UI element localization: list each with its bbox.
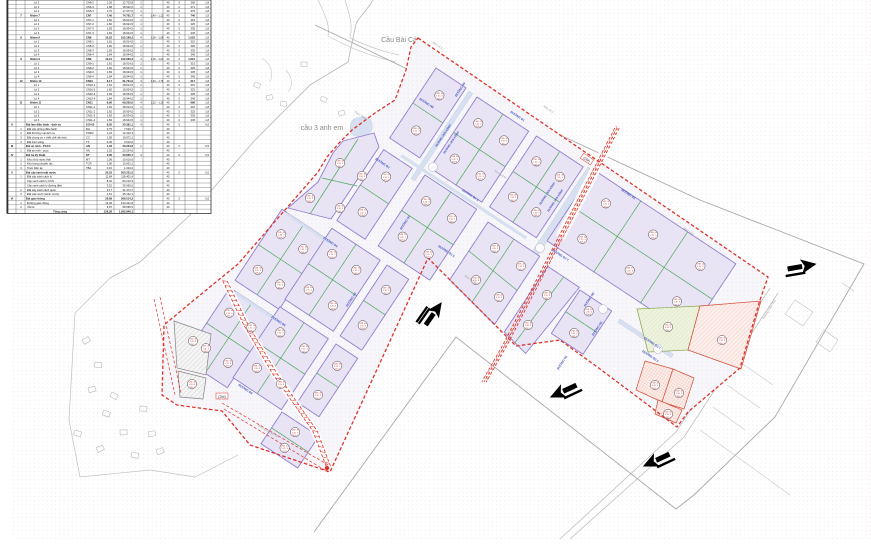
svg-text:325: 325	[191, 109, 196, 113]
svg-text:200-1: 200-1	[335, 369, 341, 371]
svg-text:CN11-1: CN11-1	[86, 105, 96, 109]
svg-text:6,90: 6,90	[107, 101, 113, 105]
svg-text:200-1: 200-1	[676, 396, 682, 398]
svg-text:1,35 3: 1,35 3	[277, 333, 284, 335]
svg-text:40: 40	[167, 136, 170, 140]
svg-text:Vỉa hè: Vỉa hè	[27, 205, 35, 209]
svg-text:18.622,0: 18.622,0	[123, 5, 134, 9]
svg-text:CN10-1: CN10-1	[86, 83, 96, 87]
svg-text:325: 325	[191, 44, 196, 48]
svg-text:18.934,5: 18.934,5	[123, 48, 134, 52]
svg-text:1,8: 1,8	[205, 53, 209, 57]
svg-text:1,35 3: 1,35 3	[334, 366, 341, 368]
svg-text:CN8 40: CN8 40	[202, 346, 210, 348]
svg-text:Đất cây xanh cách ly: Đất cây xanh cách ly	[27, 175, 52, 179]
svg-text:740: 740	[191, 14, 196, 18]
svg-text:1,35 3: 1,35 3	[359, 176, 366, 178]
svg-text:1,35 3: 1,35 3	[627, 270, 634, 272]
svg-text:1,35 3: 1,35 3	[697, 266, 704, 268]
svg-text:1,82: 1,82	[107, 22, 113, 26]
svg-text:1,35 3: 1,35 3	[307, 198, 314, 200]
svg-text:cầu 3 anh em: cầu 3 anh em	[301, 123, 344, 132]
svg-text:1,35 3: 1,35 3	[665, 327, 672, 329]
svg-text:200-1: 200-1	[279, 237, 285, 239]
svg-text:205.231,2: 205.231,2	[121, 170, 133, 174]
svg-text:40: 40	[167, 144, 170, 148]
svg-text:1,36 – 1,04: 1,36 – 1,04	[151, 58, 164, 61]
svg-text:40: 40	[167, 149, 170, 153]
svg-text:Nhóm 10: Nhóm 10	[30, 79, 42, 83]
svg-text:126,28: 126,28	[104, 210, 113, 214]
svg-text:Đất chung cư + thiết chế văn h: Đất chung cư + thiết chế văn hóa	[27, 136, 67, 140]
svg-text:40: 40	[167, 83, 170, 87]
svg-text:CN8 40: CN8 40	[509, 194, 517, 196]
svg-text:1,35 3: 1,35 3	[278, 384, 285, 386]
svg-text:200-1: 200-1	[384, 180, 390, 182]
svg-text:6,87: 6,87	[107, 205, 113, 209]
svg-text:CN11-3: CN11-3	[86, 114, 96, 118]
svg-text:1,35 3: 1,35 3	[544, 295, 551, 297]
svg-text:200-1: 200-1	[189, 387, 195, 389]
svg-text:CN8 40: CN8 40	[382, 174, 390, 176]
svg-text:18.924,5: 18.924,5	[123, 44, 134, 48]
svg-text:1,83: 1,83	[107, 27, 113, 31]
svg-text:1,81: 1,81	[107, 83, 113, 87]
svg-text:200-1: 200-1	[203, 351, 209, 353]
svg-text:AN: AN	[86, 149, 90, 153]
svg-text:CN8 40: CN8 40	[399, 234, 407, 236]
svg-text:6,5: 6,5	[205, 153, 209, 157]
svg-text:200-1: 200-1	[277, 287, 283, 289]
svg-text:40: 40	[167, 61, 170, 65]
svg-text:CN8 40: CN8 40	[253, 365, 261, 367]
svg-text:200-1: 200-1	[580, 242, 586, 244]
svg-text:1,8: 1,8	[205, 92, 209, 96]
svg-text:1,35 3: 1,35 3	[292, 432, 299, 434]
svg-text:1,36 – 1,09: 1,36 – 1,09	[151, 36, 164, 39]
svg-text:1,84: 1,84	[107, 118, 113, 122]
svg-text:CN8 40: CN8 40	[225, 310, 233, 312]
svg-text:40: 40	[167, 88, 170, 92]
svg-text:200-1: 200-1	[278, 335, 284, 337]
svg-text:40: 40	[167, 27, 170, 31]
svg-text:CN9-2: CN9-2	[86, 66, 94, 70]
svg-text:1,35 3: 1,35 3	[571, 333, 578, 335]
svg-text:Lô 2: Lô 2	[34, 0, 40, 4]
svg-text:1,8: 1,8	[205, 48, 209, 52]
svg-text:40: 40	[167, 179, 170, 183]
svg-text:20.234,6: 20.234,6	[123, 149, 134, 153]
svg-text:371: 371	[191, 5, 196, 9]
svg-text:200-1: 200-1	[315, 398, 321, 400]
svg-text:VI: VI	[11, 197, 14, 201]
svg-text:1,35 3: 1,35 3	[337, 163, 344, 165]
svg-text:40: 40	[167, 197, 170, 201]
svg-text:345: 345	[191, 53, 196, 57]
svg-text:40: 40	[167, 192, 170, 196]
svg-text:1,8: 1,8	[205, 88, 209, 92]
svg-text:1,8: 1,8	[205, 70, 209, 74]
svg-text:DH: DH	[86, 127, 90, 131]
svg-text:1,83: 1,83	[107, 92, 113, 96]
svg-text:20.391,1: 20.391,1	[123, 122, 134, 126]
svg-text:134.421,8: 134.421,8	[121, 201, 133, 205]
svg-text:20,69: 20,69	[105, 197, 112, 201]
svg-text:1,88: 1,88	[107, 5, 113, 9]
svg-text:31.474,7: 31.474,7	[123, 188, 134, 192]
svg-text:1,8: 1,8	[205, 75, 209, 79]
svg-text:1,35 3: 1,35 3	[518, 266, 525, 268]
svg-text:1,35 3: 1,35 3	[674, 302, 681, 304]
svg-text:18.924,5: 18.924,5	[123, 22, 134, 26]
svg-text:1,8: 1,8	[205, 101, 209, 105]
svg-text:CN8 40: CN8 40	[436, 93, 444, 95]
svg-text:375: 375	[191, 9, 196, 13]
svg-text:200-1: 200-1	[384, 293, 390, 295]
svg-text:40: 40	[167, 170, 170, 174]
svg-text:CN6-3: CN6-3	[86, 5, 94, 9]
svg-text:40: 40	[167, 5, 170, 9]
svg-text:200-1: 200-1	[330, 308, 336, 310]
svg-text:CN8 40: CN8 40	[301, 346, 309, 348]
svg-text:206.514,2: 206.514,2	[121, 197, 133, 201]
svg-text:18.944,5: 18.944,5	[123, 53, 134, 57]
svg-text:Lô 1: Lô 1	[34, 83, 40, 87]
svg-text:20.234,6: 20.234,6	[123, 144, 134, 148]
svg-text:6,5: 6,5	[205, 170, 209, 174]
svg-text:0,45: 0,45	[107, 140, 113, 144]
svg-text:CN8 40: CN8 40	[299, 247, 307, 249]
svg-text:CN8 40: CN8 40	[570, 331, 578, 333]
svg-text:1,8: 1,8	[205, 5, 209, 9]
svg-text:(2M): (2M)	[218, 395, 225, 399]
svg-text:1,24: 1,24	[107, 131, 113, 135]
svg-text:315: 315	[191, 40, 196, 44]
svg-text:1,35 3: 1,35 3	[301, 349, 308, 351]
svg-text:1,26: 1,26	[107, 0, 113, 4]
svg-text:40: 40	[167, 44, 170, 48]
svg-text:200-1: 200-1	[627, 273, 633, 275]
svg-text:CN8 40: CN8 40	[675, 391, 683, 393]
svg-text:KT: KT	[86, 153, 90, 157]
svg-text:1.021: 1.021	[188, 57, 195, 61]
svg-text:1,35 3: 1,35 3	[226, 313, 233, 315]
svg-text:6,17: 6,17	[107, 79, 113, 83]
svg-text:1,8: 1,8	[205, 118, 209, 122]
svg-text:18.914,5: 18.914,5	[123, 83, 134, 87]
svg-text:CN8 40: CN8 40	[651, 383, 659, 385]
svg-text:13,39: 13,39	[105, 201, 112, 205]
svg-text:CN8 40: CN8 40	[352, 268, 360, 270]
svg-text:200-1: 200-1	[510, 200, 516, 202]
svg-text:40: 40	[167, 48, 170, 52]
svg-text:40: 40	[167, 140, 170, 144]
svg-text:CN8-1: CN8-1	[86, 40, 94, 44]
svg-text:1,81: 1,81	[107, 40, 113, 44]
svg-text:CN11: CN11	[86, 101, 93, 105]
svg-text:3,06: 3,06	[107, 153, 113, 157]
svg-text:Đất an ninh - pccc: Đất an ninh - pccc	[27, 149, 49, 153]
svg-text:102.066,3: 102.066,3	[121, 57, 133, 61]
svg-text:1,8: 1,8	[205, 14, 209, 18]
svg-text:Lô 1: Lô 1	[34, 18, 40, 22]
svg-text:1,35 3: 1,35 3	[719, 340, 726, 342]
svg-text:CN8 40: CN8 40	[602, 201, 610, 203]
svg-text:345: 345	[191, 75, 196, 79]
svg-text:CN8 40: CN8 40	[533, 159, 541, 161]
svg-text:12.703,8: 12.703,8	[123, 0, 134, 4]
svg-text:17.377,0: 17.377,0	[123, 9, 134, 13]
svg-text:200-1: 200-1	[719, 343, 725, 345]
svg-text:325: 325	[191, 66, 196, 70]
svg-text:1,35 3: 1,35 3	[413, 131, 420, 133]
svg-text:18.934,5: 18.934,5	[123, 92, 134, 96]
svg-text:200-1: 200-1	[414, 133, 420, 135]
svg-text:1,35 3: 1,35 3	[329, 254, 336, 256]
svg-text:CN8 40: CN8 40	[626, 268, 634, 270]
svg-text:68.695,5: 68.695,5	[123, 205, 134, 209]
svg-text:1,35 3: 1,35 3	[278, 235, 285, 237]
svg-text:CN8 40: CN8 40	[276, 282, 284, 284]
svg-text:1,35 3: 1,35 3	[557, 177, 564, 179]
svg-text:CN8: CN8	[86, 35, 92, 39]
svg-text:1.262.846,1: 1.262.846,1	[119, 210, 134, 214]
svg-text:1,35 3: 1,35 3	[306, 290, 313, 292]
svg-text:Cây xanh cách ly KCN: Cây xanh cách ly KCN	[27, 179, 54, 183]
svg-text:61.731,0: 61.731,0	[123, 79, 134, 83]
svg-text:CN7-3: CN7-3	[86, 27, 94, 31]
svg-text:200-1: 200-1	[525, 328, 531, 330]
svg-text:Đất làm điều hành - dịch vụ: Đất làm điều hành - dịch vụ	[26, 122, 61, 126]
svg-text:CN11-2: CN11-2	[86, 109, 96, 113]
svg-text:200-1: 200-1	[354, 273, 360, 275]
svg-text:1,35 3: 1,35 3	[425, 254, 432, 256]
svg-text:CN8 40: CN8 40	[328, 252, 336, 254]
svg-text:1,81: 1,81	[107, 61, 113, 65]
svg-text:1,35 3: 1,35 3	[477, 176, 484, 178]
svg-text:40: 40	[167, 14, 170, 18]
svg-text:CN8 40: CN8 40	[664, 412, 672, 414]
svg-text:40: 40	[167, 205, 170, 209]
svg-text:Lô 3: Lô 3	[34, 48, 40, 52]
svg-text:1,35 3: 1,35 3	[501, 141, 508, 143]
svg-text:CN8 40: CN8 40	[281, 445, 289, 447]
svg-text:200-1: 200-1	[449, 221, 455, 223]
svg-text:CN8 40: CN8 40	[305, 287, 313, 289]
svg-text:CN8 40: CN8 40	[649, 232, 657, 234]
svg-text:1,35 3: 1,35 3	[254, 368, 261, 370]
svg-text:1,82: 1,82	[107, 44, 113, 48]
svg-text:1,35 3: 1,35 3	[255, 270, 262, 272]
svg-text:1,95: 1,95	[107, 136, 113, 140]
svg-text:40: 40	[167, 118, 170, 122]
svg-text:40: 40	[167, 75, 170, 79]
svg-text:40: 40	[167, 114, 170, 118]
svg-text:40: 40	[167, 101, 170, 105]
svg-text:Đất an ninh - PCCC: Đất an ninh - PCCC	[26, 144, 51, 148]
svg-text:200-1: 200-1	[293, 435, 299, 437]
svg-text:1,8: 1,8	[205, 61, 209, 65]
svg-text:10: 10	[20, 79, 23, 83]
svg-text:Lô 2: Lô 2	[34, 88, 40, 92]
svg-text:1,8: 1,8	[205, 83, 209, 87]
svg-text:1,40 – 1,76: 1,40 – 1,76	[151, 80, 164, 83]
svg-text:200-1: 200-1	[665, 417, 671, 419]
svg-text:40: 40	[167, 9, 170, 13]
svg-text:1,81: 1,81	[107, 18, 113, 22]
svg-text:40: 40	[167, 122, 170, 126]
svg-text:345: 345	[191, 96, 196, 100]
svg-text:325: 325	[191, 88, 196, 92]
svg-text:1,8: 1,8	[205, 27, 209, 31]
svg-text:40: 40	[167, 166, 170, 170]
svg-text:200-1: 200-1	[698, 269, 704, 271]
svg-text:Lô 2: Lô 2	[34, 44, 40, 48]
svg-text:1.022: 1.022	[188, 35, 195, 39]
svg-text:617: 617	[191, 79, 196, 83]
svg-text:20,52: 20,52	[105, 170, 112, 174]
svg-text:1,02: 1,02	[107, 144, 113, 148]
svg-text:Lô 2: Lô 2	[34, 22, 40, 26]
svg-text:200-1: 200-1	[665, 330, 671, 332]
svg-text:40: 40	[167, 57, 170, 61]
svg-text:Nhóm 11: Nhóm 11	[30, 101, 42, 105]
svg-text:1,35 3: 1,35 3	[423, 202, 430, 204]
svg-text:690: 690	[191, 101, 196, 105]
svg-text:Đất cây xanh cảnh quan: Đất cây xanh cảnh quan	[27, 188, 56, 192]
svg-text:40: 40	[167, 201, 170, 205]
svg-text:200-1: 200-1	[476, 126, 482, 128]
svg-text:18.914,5: 18.914,5	[123, 18, 134, 22]
svg-text:18.944,5: 18.944,5	[123, 31, 134, 35]
svg-text:200-1: 200-1	[674, 304, 680, 306]
svg-text:200-1: 200-1	[544, 298, 550, 300]
svg-text:200-1: 200-1	[254, 371, 260, 373]
svg-text:1,8: 1,8	[205, 0, 209, 4]
svg-text:200-1: 200-1	[501, 143, 507, 145]
svg-text:CN8 40: CN8 40	[248, 325, 256, 327]
svg-text:1,84: 1,84	[107, 96, 113, 100]
svg-text:40: 40	[167, 40, 170, 44]
svg-text:200-1: 200-1	[652, 388, 658, 390]
svg-text:CN8-4: CN8-4	[86, 53, 94, 57]
svg-text:1,35 3: 1,35 3	[330, 306, 337, 308]
svg-text:CN8 40: CN8 40	[448, 216, 456, 218]
svg-text:200-1: 200-1	[572, 336, 578, 338]
svg-text:1,35 3: 1,35 3	[492, 248, 499, 250]
svg-text:CN8 40: CN8 40	[306, 196, 314, 198]
svg-text:CN9-1: CN9-1	[86, 61, 94, 65]
svg-text:1,35 3: 1,35 3	[281, 448, 288, 450]
svg-text:1,35 3: 1,35 3	[510, 197, 517, 199]
svg-text:6,5: 6,5	[205, 144, 209, 148]
svg-text:315: 315	[191, 61, 196, 65]
svg-text:18.944,5: 18.944,5	[123, 96, 134, 100]
svg-text:1,83: 1,83	[107, 48, 113, 52]
svg-text:12.412,3: 12.412,3	[123, 131, 134, 135]
svg-text:200-1: 200-1	[452, 162, 458, 164]
svg-text:CN8 40: CN8 40	[276, 330, 284, 332]
svg-text:40: 40	[167, 153, 170, 157]
svg-text:Cây xanh cách ly đường điện: Cây xanh cách ly đường điện	[27, 183, 63, 187]
svg-text:40: 40	[167, 31, 170, 35]
svg-text:335: 335	[191, 114, 196, 118]
svg-text:CN6-2: CN6-2	[86, 0, 94, 4]
svg-text:3,17: 3,17	[107, 188, 113, 192]
svg-text:1,35 3: 1,35 3	[525, 325, 532, 327]
svg-text:Đất mặt nước (kênh nước): Đất mặt nước (kênh nước)	[27, 192, 59, 196]
svg-text:1,82: 1,82	[107, 66, 113, 70]
svg-text:CN10-2: CN10-2	[86, 88, 96, 92]
svg-text:CN8 40: CN8 40	[224, 360, 232, 362]
svg-text:CN8 40: CN8 40	[188, 382, 196, 384]
svg-text:CN8 40: CN8 40	[358, 174, 366, 176]
svg-text:18.924,5: 18.924,5	[123, 109, 134, 113]
svg-text:4,51: 4,51	[107, 192, 113, 196]
svg-text:CN8 40: CN8 40	[543, 293, 551, 295]
svg-text:1,35 3: 1,35 3	[676, 393, 683, 395]
svg-text:1,35 3: 1,35 3	[586, 312, 593, 314]
svg-text:Nhóm 7: Nhóm 7	[30, 14, 40, 18]
svg-text:1,8: 1,8	[205, 109, 209, 113]
svg-text:200-1: 200-1	[534, 215, 540, 217]
svg-text:1,00: 1,00	[107, 162, 113, 166]
svg-text:Đường giao thông: Đường giao thông	[27, 201, 49, 205]
svg-text:Lô 4: Lô 4	[34, 9, 40, 13]
svg-text:0,10: 0,10	[107, 166, 113, 170]
svg-text:1,8: 1,8	[205, 57, 209, 61]
svg-text:40: 40	[167, 183, 170, 187]
svg-text:CN8 40: CN8 40	[474, 121, 482, 123]
svg-text:Đất văn phòng điều hành: Đất văn phòng điều hành	[27, 127, 58, 131]
svg-text:Đất thương mại dịch vụ: Đất thương mại dịch vụ	[27, 131, 56, 135]
svg-text:CC: CC	[86, 136, 90, 140]
svg-text:11: 11	[20, 101, 23, 105]
svg-text:1,83: 1,83	[107, 114, 113, 118]
svg-text:1,8: 1,8	[205, 114, 209, 118]
svg-text:Lô 4: Lô 4	[34, 53, 40, 57]
svg-text:200-1: 200-1	[437, 98, 443, 100]
svg-text:40: 40	[167, 22, 170, 26]
svg-text:40: 40	[167, 188, 170, 192]
svg-text:1,82: 1,82	[107, 88, 113, 92]
svg-text:18.924,5: 18.924,5	[123, 88, 134, 92]
svg-text:CN8 40: CN8 40	[451, 156, 459, 158]
svg-text:TCR: TCR	[86, 162, 92, 166]
svg-text:1,83: 1,83	[107, 70, 113, 74]
svg-text:1,35 3: 1,35 3	[665, 414, 672, 416]
svg-text:200-1: 200-1	[651, 238, 657, 240]
svg-text:Khu trung chuyển rác: Khu trung chuyển rác	[27, 162, 53, 166]
svg-text:Lô 1: Lô 1	[34, 61, 40, 65]
svg-text:1,8: 1,8	[205, 9, 209, 13]
svg-text:CN9-3: CN9-3	[86, 70, 94, 74]
svg-text:CN8 40: CN8 40	[495, 295, 503, 297]
svg-text:Lô 4: Lô 4	[34, 31, 40, 35]
svg-text:10,21: 10,21	[105, 57, 112, 61]
svg-text:200-1: 200-1	[301, 252, 307, 254]
svg-text:1,35 3: 1,35 3	[189, 384, 196, 386]
svg-text:102.166,3: 102.166,3	[121, 35, 133, 39]
svg-text:Đất hạ kỹ thuật: Đất hạ kỹ thuật	[26, 153, 45, 157]
svg-text:200-1: 200-1	[557, 180, 563, 182]
svg-text:18.944,5: 18.944,5	[123, 118, 134, 122]
svg-text:Lô 2: Lô 2	[34, 109, 40, 113]
svg-text:8,55: 8,55	[107, 122, 113, 126]
svg-text:45.162,1: 45.162,1	[123, 192, 134, 196]
svg-text:Lô 4: Lô 4	[34, 118, 40, 122]
svg-text:18.934,5: 18.934,5	[123, 27, 134, 31]
